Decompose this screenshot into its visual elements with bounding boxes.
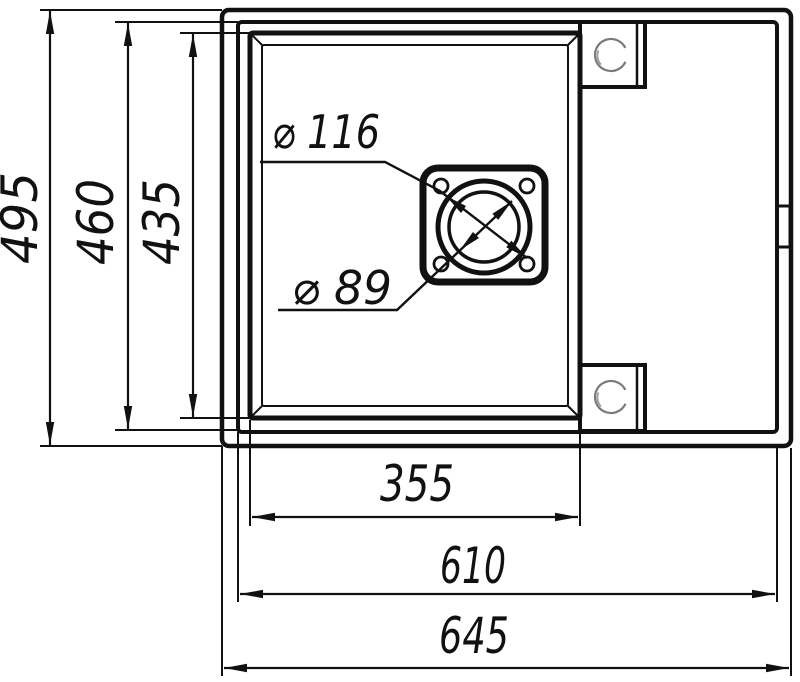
- mount-bracket-bottom-hole-sketch: [590, 376, 633, 419]
- dim-label-drain-hole-diameter: ⌀ 89: [292, 261, 392, 315]
- dim-label-inner-height: 460: [67, 179, 125, 265]
- extension-lines: [40, 10, 791, 676]
- dim-leader-drain-flange: [260, 162, 527, 258]
- dim-label-overall-height: 495: [0, 172, 49, 264]
- mount-bracket-top: [580, 22, 645, 87]
- drain-screw-hole-tr: [520, 179, 534, 193]
- dim-label-bowl-width: 355: [380, 455, 454, 513]
- bowl-bevel-corner-tl: [251, 34, 263, 46]
- bowl-bevel-corner-tr: [567, 34, 579, 46]
- dim-label-drain-flange-diameter: ⌀ 116: [272, 105, 380, 159]
- technical-drawing-canvas: 495 460 435 355 610 645 ⌀ 116 ⌀ 89: [0, 0, 800, 682]
- sink-outer-edge: [222, 10, 791, 446]
- dim-label-bowl-height: 435: [133, 179, 191, 265]
- drain-screw-hole-br: [520, 257, 534, 271]
- mount-bracket-bottom: [580, 365, 645, 431]
- dim-label-inner-width: 610: [440, 537, 506, 595]
- sink-rim-inner-edge: [238, 22, 777, 432]
- dim-label-overall-width: 645: [439, 607, 509, 665]
- bowl-bevel-edge: [262, 45, 568, 406]
- bowl-bevel-corner-br: [567, 405, 579, 417]
- sink-technical-drawing: 495 460 435 355 610 645 ⌀ 116 ⌀ 89: [0, 0, 800, 682]
- mount-bracket-top-hole-sketch: [590, 34, 633, 77]
- bowl-bevel-corner-bl: [251, 405, 263, 417]
